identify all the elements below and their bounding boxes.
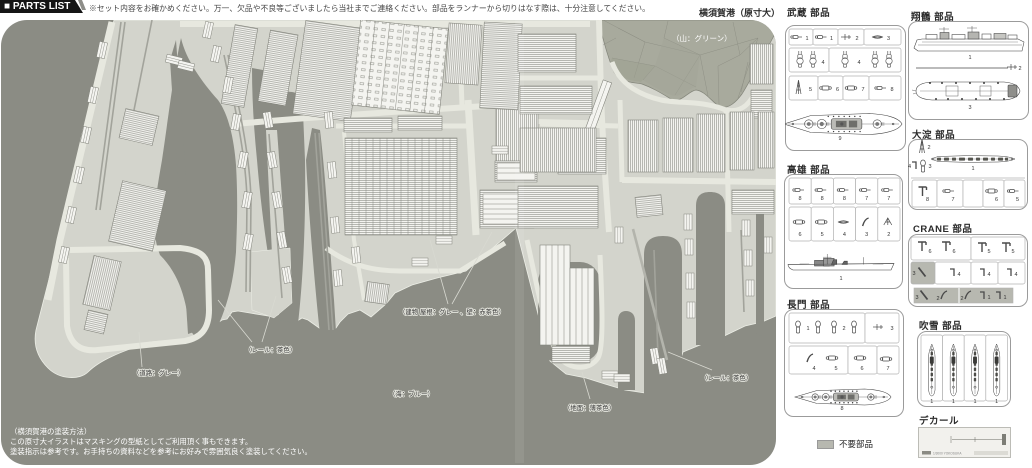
- svg-text:（海：ブルー）: （海：ブルー）: [389, 389, 434, 398]
- svg-text:4: 4: [1014, 272, 1017, 278]
- svg-text:7: 7: [887, 196, 890, 202]
- svg-text:2: 2: [1018, 66, 1021, 72]
- svg-text:（建物 屋根：グレー 、壁：赤茶色）: （建物 屋根：グレー 、壁：赤茶色）: [399, 307, 505, 316]
- svg-text:1: 1: [968, 55, 971, 61]
- svg-text:4: 4: [957, 272, 960, 278]
- svg-text:8: 8: [840, 406, 843, 412]
- svg-text:（道路：グレー）: （道路：グレー）: [133, 368, 184, 377]
- svg-text:1: 1: [805, 36, 808, 42]
- svg-text:6: 6: [798, 232, 801, 238]
- svg-text:2: 2: [855, 36, 858, 42]
- svg-text:（山：グリーン）: （山：グリーン）: [672, 33, 732, 43]
- svg-text:5: 5: [809, 87, 812, 93]
- svg-text:5: 5: [1011, 249, 1014, 255]
- svg-text:1: 1: [1003, 295, 1006, 301]
- svg-text:6: 6: [952, 249, 955, 255]
- svg-text:1: 1: [839, 276, 842, 282]
- svg-text:3: 3: [968, 105, 971, 111]
- svg-text:7: 7: [865, 196, 868, 202]
- svg-text:4: 4: [908, 164, 911, 170]
- svg-text:8: 8: [798, 196, 801, 202]
- svg-text:1: 1: [952, 399, 955, 405]
- svg-text:4: 4: [843, 232, 846, 238]
- svg-text:2: 2: [927, 145, 930, 151]
- svg-text:1: 1: [987, 295, 990, 301]
- svg-text:6: 6: [836, 87, 839, 93]
- svg-text:7: 7: [861, 87, 864, 93]
- svg-text:5: 5: [834, 366, 837, 372]
- svg-text:1/3000 YOKOSUKA: 1/3000 YOKOSUKA: [933, 452, 962, 456]
- svg-text:5: 5: [821, 232, 824, 238]
- svg-text:この原寸大イラストはマスキングの型紙としてご利用頂く事もでき: この原寸大イラストはマスキングの型紙としてご利用頂く事もできます。: [10, 437, 252, 446]
- svg-text:塗装指示は参考です。お手持ちの資料などを参考にお好みで雰囲気: 塗装指示は参考です。お手持ちの資料などを参考にお好みで雰囲気良く塗装してください…: [10, 447, 312, 456]
- svg-text:9: 9: [838, 136, 841, 142]
- svg-text:4: 4: [987, 272, 990, 278]
- svg-text:2: 2: [960, 296, 963, 302]
- svg-text:2: 2: [887, 232, 890, 238]
- svg-text:1: 1: [971, 166, 974, 172]
- svg-text:6: 6: [995, 197, 998, 203]
- svg-text:6: 6: [860, 366, 863, 372]
- svg-text:7: 7: [886, 366, 889, 372]
- svg-text:4: 4: [857, 60, 860, 66]
- svg-text:3: 3: [915, 295, 918, 301]
- svg-text:8: 8: [926, 197, 929, 203]
- svg-text:5: 5: [1016, 197, 1019, 203]
- svg-text:4: 4: [812, 366, 815, 372]
- svg-text:（レール：茶色）: （レール：茶色）: [245, 345, 296, 354]
- svg-text:（レール：茶色）: （レール：茶色）: [701, 373, 752, 382]
- svg-text:8: 8: [821, 196, 824, 202]
- svg-text:8: 8: [843, 196, 846, 202]
- svg-text:1: 1: [995, 399, 998, 405]
- svg-text:5: 5: [987, 249, 990, 255]
- svg-text:7: 7: [951, 197, 954, 203]
- svg-text:1: 1: [973, 399, 976, 405]
- svg-text:4: 4: [821, 60, 824, 66]
- svg-text:3: 3: [912, 271, 915, 277]
- svg-text:3: 3: [890, 326, 893, 332]
- svg-text:8: 8: [890, 87, 893, 93]
- svg-text:2: 2: [936, 296, 939, 302]
- svg-text:1: 1: [830, 36, 833, 42]
- svg-text:3: 3: [928, 164, 931, 170]
- svg-text:（横須賀港の塗装方法）: （横須賀港の塗装方法）: [10, 427, 91, 436]
- svg-text:1: 1: [806, 326, 809, 332]
- svg-text:2: 2: [842, 326, 845, 332]
- svg-text:6: 6: [928, 249, 931, 255]
- svg-text:3: 3: [865, 232, 868, 238]
- svg-text:3: 3: [887, 36, 890, 42]
- svg-text:1: 1: [930, 399, 933, 405]
- svg-text:（地面：薄茶色）: （地面：薄茶色）: [564, 403, 615, 412]
